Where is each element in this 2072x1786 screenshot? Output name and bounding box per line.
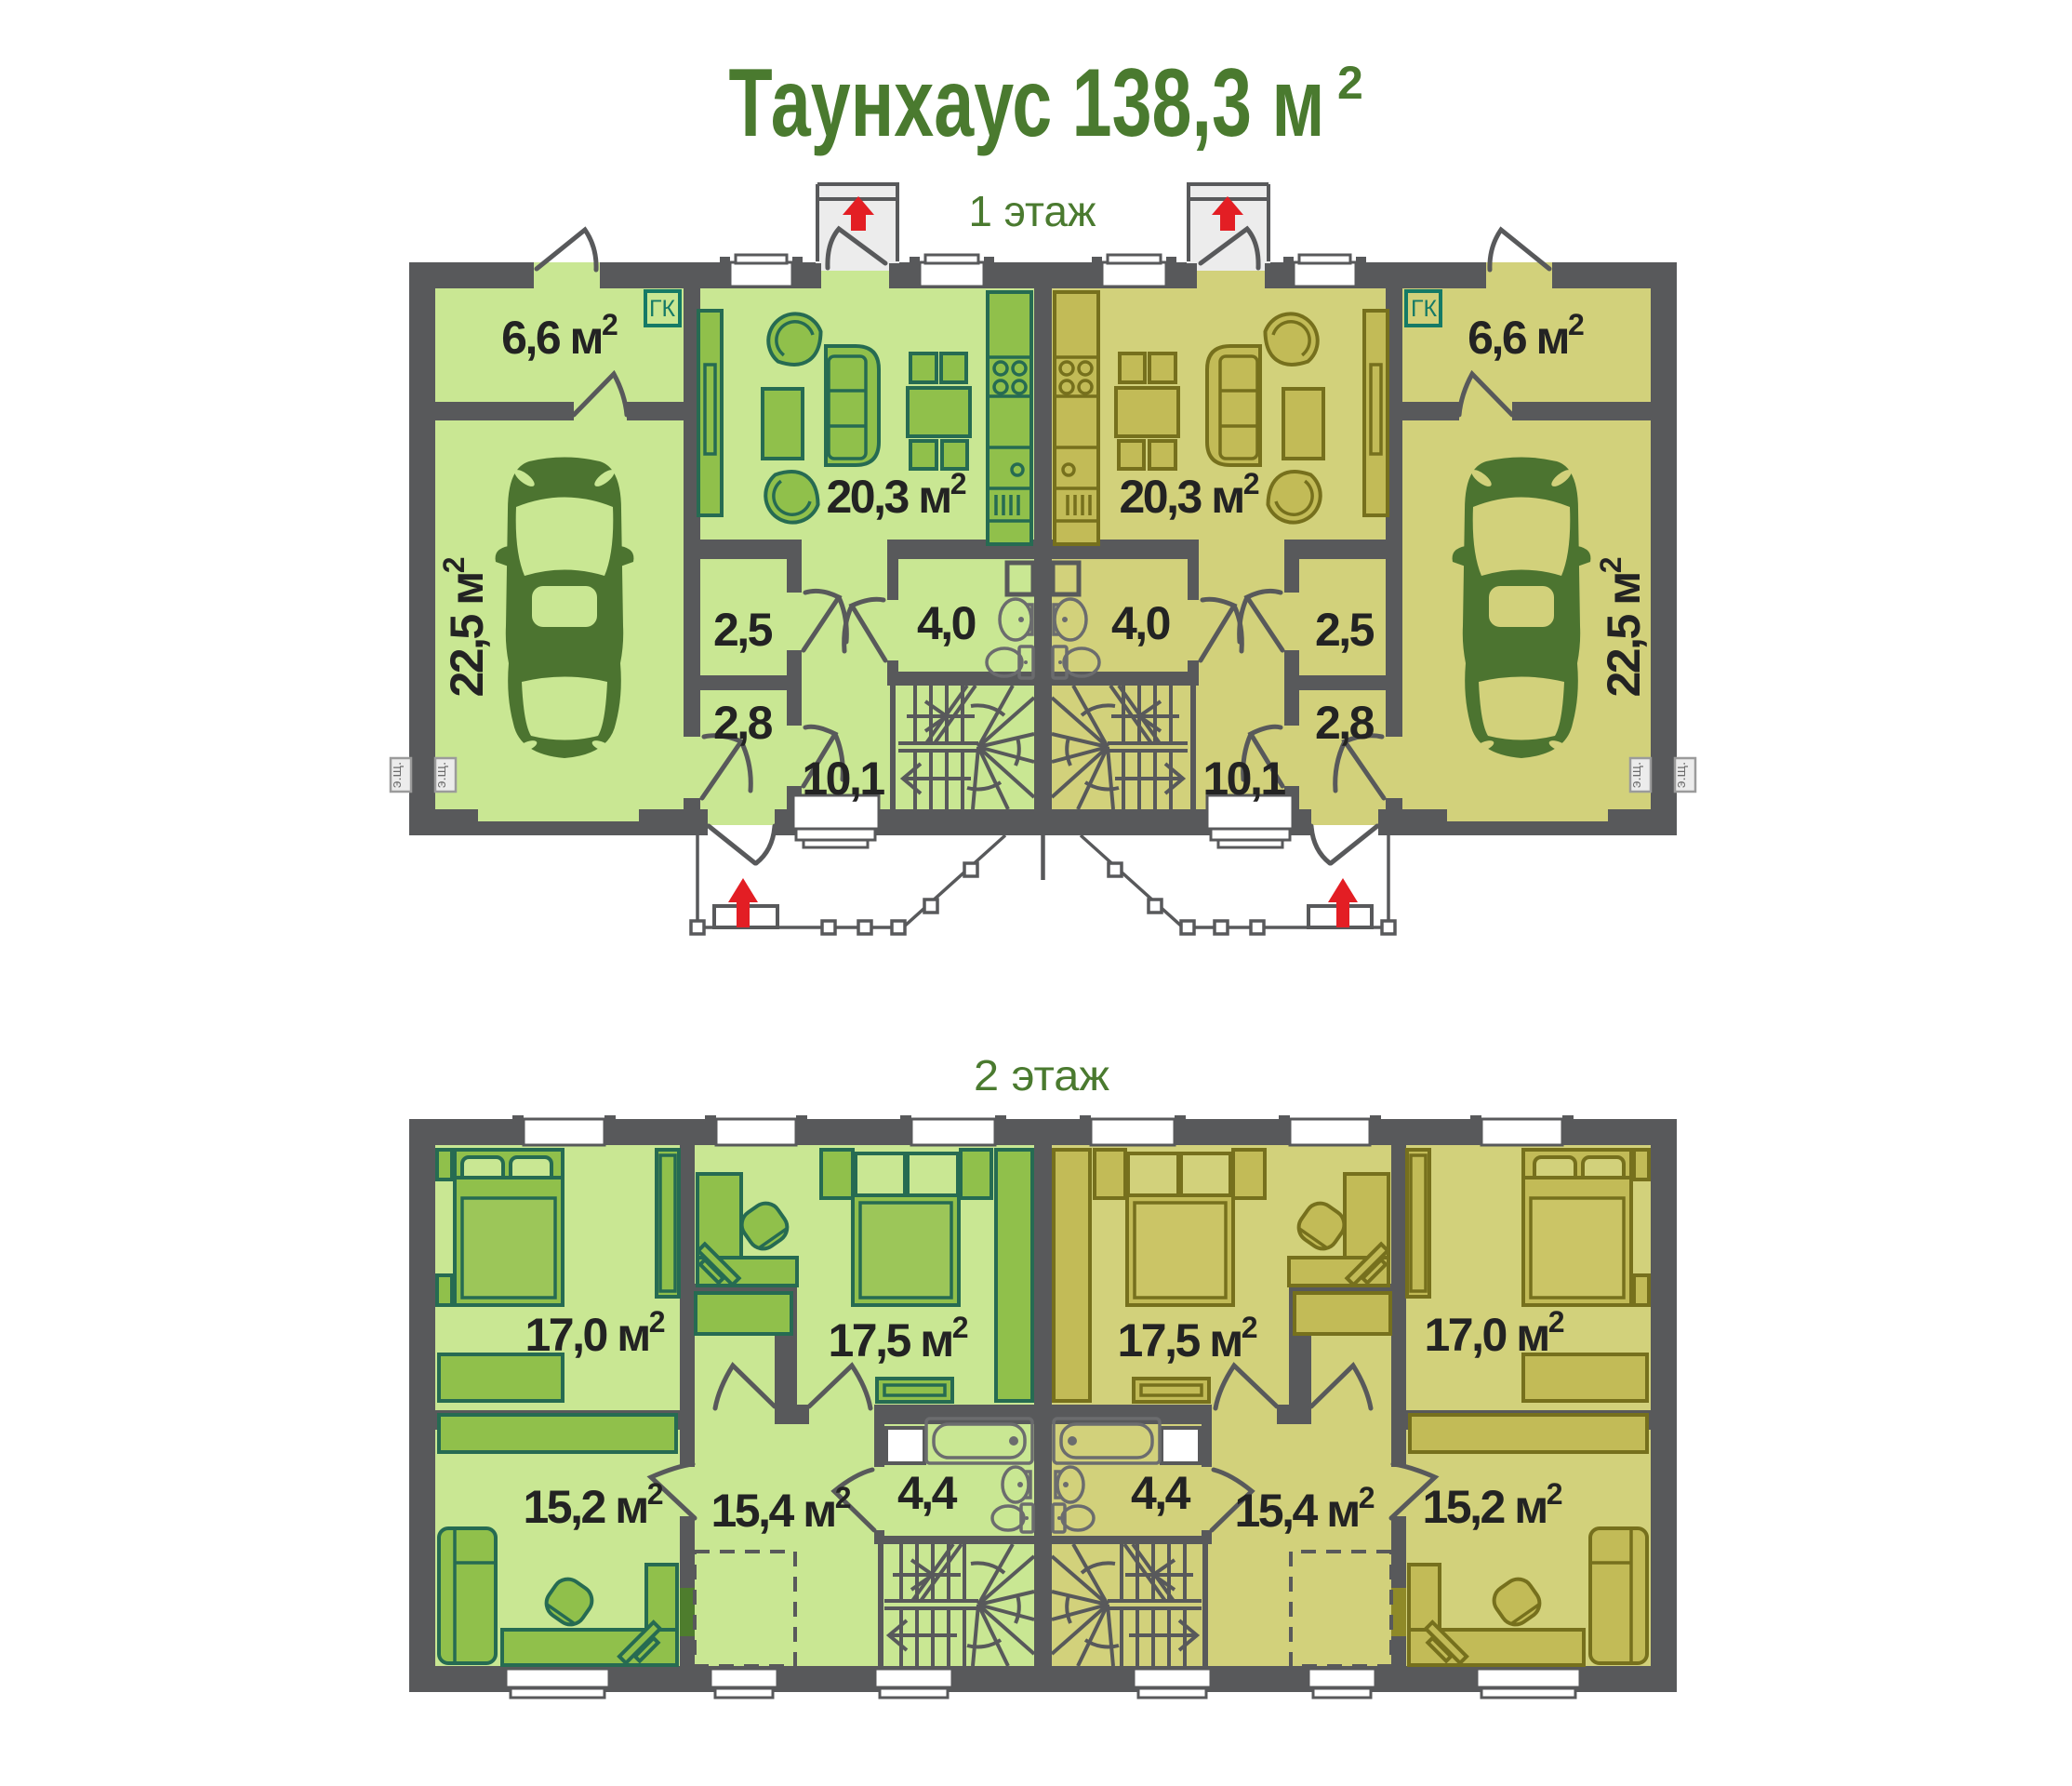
svg-text:э.щ.: э.щ. — [1673, 762, 1689, 788]
svg-text:2,5: 2,5 — [1315, 604, 1375, 656]
svg-text:4,4: 4,4 — [1131, 1467, 1191, 1519]
svg-text:ГК: ГК — [1411, 296, 1438, 322]
svg-text:4,0: 4,0 — [917, 597, 976, 649]
svg-text:15,2 м2: 15,2 м2 — [524, 1477, 664, 1533]
svg-text:1 этаж: 1 этаж — [969, 187, 1096, 235]
svg-text:6,6 м2: 6,6 м2 — [1468, 308, 1585, 364]
svg-text:10,1: 10,1 — [1202, 753, 1285, 805]
svg-text:15,4 м2: 15,4 м2 — [711, 1481, 852, 1537]
svg-text:22,5 м2: 22,5 м2 — [437, 557, 493, 698]
svg-text:17,5 м2: 17,5 м2 — [829, 1311, 969, 1366]
svg-text:22,5 м2: 22,5 м2 — [1594, 557, 1650, 698]
svg-text:15,4 м2: 15,4 м2 — [1235, 1481, 1375, 1537]
svg-text:10,1: 10,1 — [802, 753, 884, 805]
svg-text:э.щ.: э.щ. — [433, 762, 449, 788]
svg-text:ГК: ГК — [649, 296, 676, 322]
svg-text:2 этаж: 2 этаж — [974, 1051, 1109, 1100]
svg-text:15,2 м2: 15,2 м2 — [1423, 1477, 1563, 1533]
svg-text:6,6 м2: 6,6 м2 — [501, 308, 618, 364]
svg-text:17,5 м2: 17,5 м2 — [1118, 1311, 1258, 1366]
svg-text:э.щ.: э.щ. — [1628, 762, 1644, 788]
svg-text:20,3 м2: 20,3 м2 — [1120, 467, 1260, 523]
svg-text:2,8: 2,8 — [1315, 697, 1375, 749]
svg-text:4,0: 4,0 — [1111, 597, 1170, 649]
svg-text:2,8: 2,8 — [713, 697, 773, 749]
svg-text:э.щ.: э.щ. — [389, 762, 405, 788]
svg-text:2: 2 — [1337, 57, 1363, 109]
svg-text:17,0 м2: 17,0 м2 — [525, 1305, 666, 1361]
svg-text:4,4: 4,4 — [897, 1467, 958, 1519]
svg-text:2,5: 2,5 — [713, 604, 773, 656]
svg-text:17,0 м2: 17,0 м2 — [1425, 1305, 1565, 1361]
svg-text:20,3 м2: 20,3 м2 — [827, 467, 967, 523]
svg-text:Таунхаус 138,3 м: Таунхаус 138,3 м — [729, 49, 1325, 157]
